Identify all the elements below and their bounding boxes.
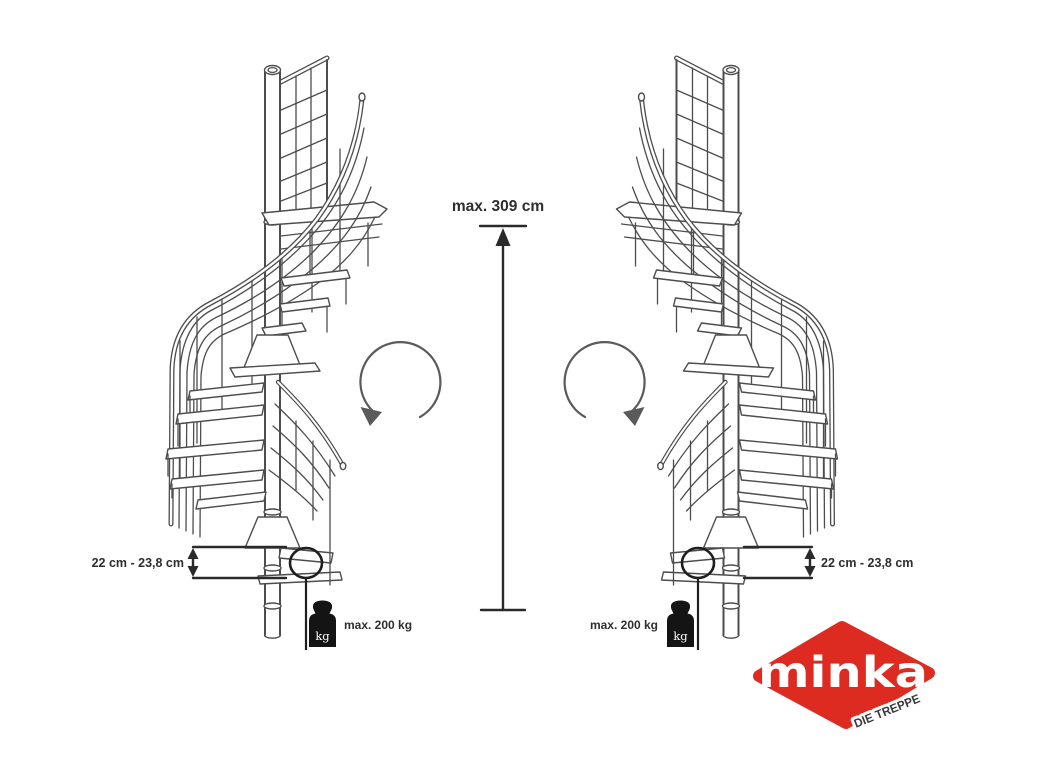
kettlebell-weight-icon-left <box>309 601 336 648</box>
minka-logo: minka DIE TREPPE <box>758 627 929 731</box>
logo-brand-text: minka <box>758 648 928 698</box>
diagram-page: kg max. 309 cm 22 cm - 23,8 cm <box>0 0 1050 772</box>
kettlebell-weight-icon-right <box>667 601 694 648</box>
max-load-label-right: max. 200 kg <box>590 618 658 632</box>
rotate-ccw-icon <box>360 342 440 426</box>
height-dimension-label: max. 309 cm <box>452 198 544 215</box>
max-load-label-left: max. 200 kg <box>344 618 412 632</box>
step-height-dimension-right: 22 cm - 23,8 cm <box>744 547 913 578</box>
step-height-label-left: 22 cm - 23,8 cm <box>92 556 184 570</box>
step-height-dimension-left: 22 cm - 23,8 cm <box>92 547 286 578</box>
step-height-label-right: 22 cm - 23,8 cm <box>821 556 913 570</box>
staircase-right-drawing <box>617 58 838 638</box>
height-dimension: max. 309 cm <box>452 198 544 610</box>
rotate-cw-icon <box>565 342 645 426</box>
spiral-staircase-diagram: kg max. 309 cm 22 cm - 23,8 cm <box>0 0 1050 772</box>
staircase-left-drawing <box>166 58 387 638</box>
load-annotation-left: max. 200 kg <box>290 548 412 650</box>
load-annotation-right: max. 200 kg <box>590 548 714 650</box>
